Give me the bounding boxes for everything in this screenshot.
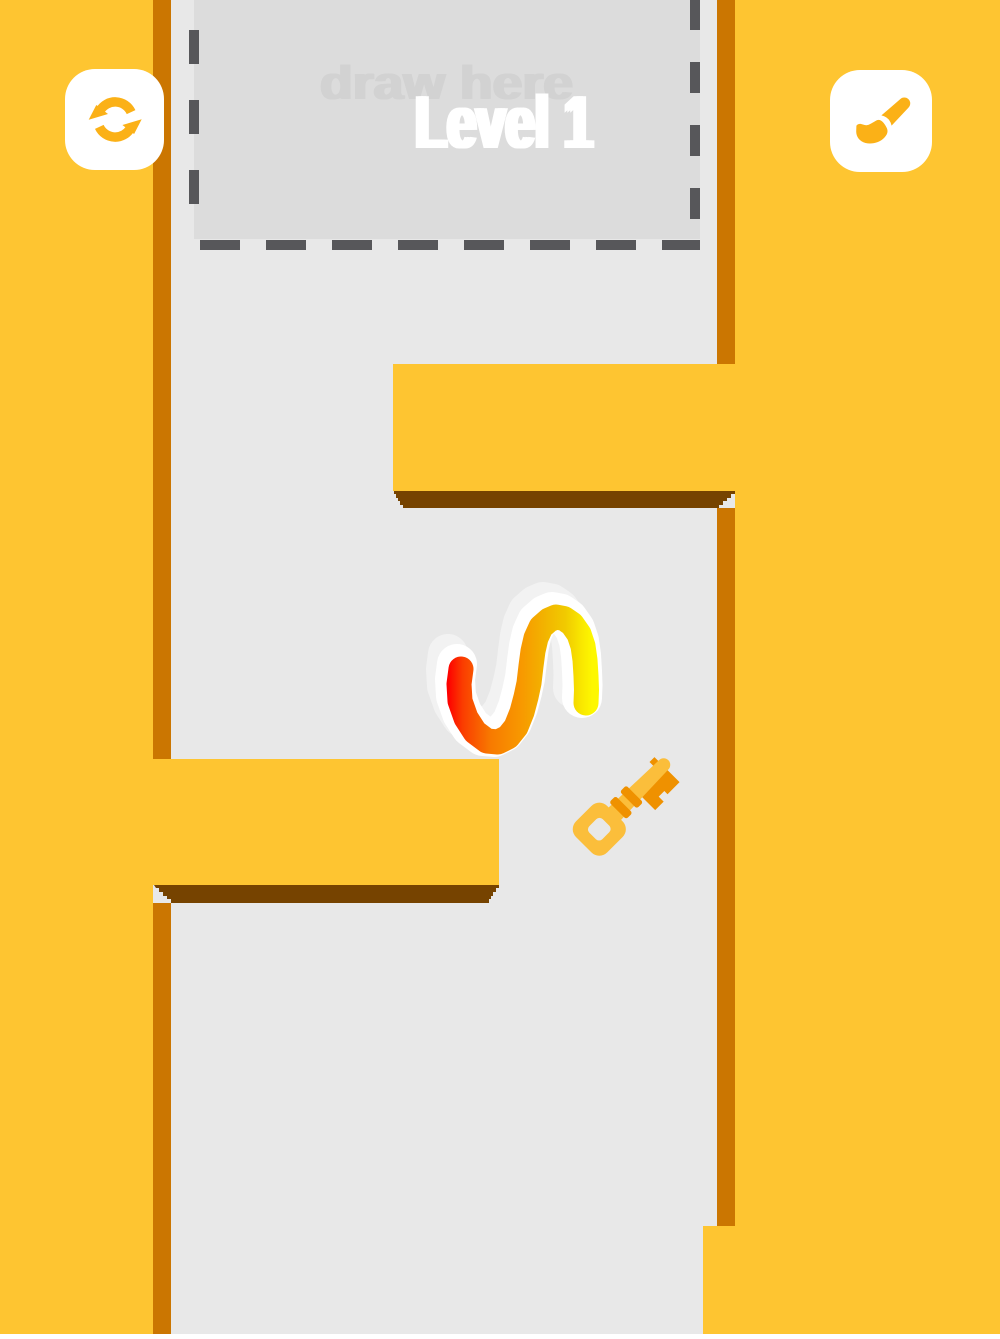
- svg-text:Level 1: Level 1: [418, 80, 596, 165]
